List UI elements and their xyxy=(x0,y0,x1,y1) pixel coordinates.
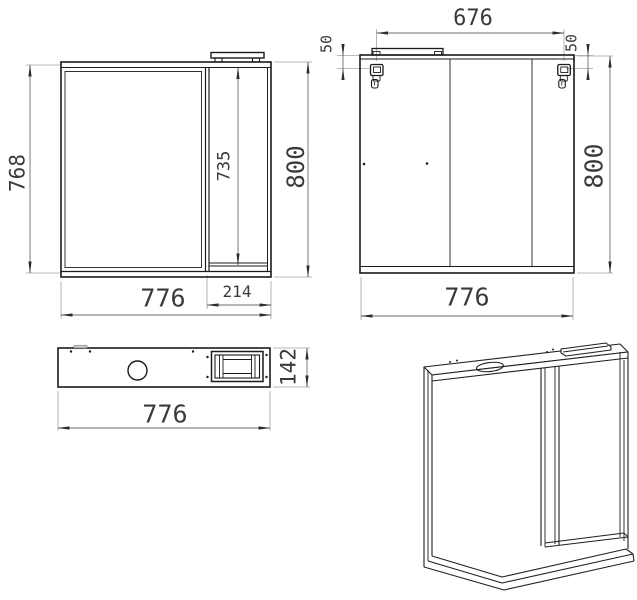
front-extension-lines xyxy=(26,62,312,319)
dim-front-width-overall: 776 xyxy=(140,286,185,311)
drawing-svg xyxy=(0,0,637,600)
screw-mark xyxy=(265,376,267,378)
screw-mark xyxy=(206,356,208,358)
screw-mark xyxy=(89,350,91,352)
dim-front-door-width: 214 xyxy=(223,284,252,300)
dim-front-height-left: 768 xyxy=(8,154,29,192)
screw-mark xyxy=(70,350,72,352)
screw-mark xyxy=(265,354,267,356)
light-fixture-rear xyxy=(372,49,443,56)
side-compartment-top xyxy=(212,352,264,382)
rear-view xyxy=(337,29,613,320)
dim-rear-width-overall: 776 xyxy=(444,285,489,310)
hanger-bracket-left xyxy=(371,65,384,89)
dim-front-height-overall: 800 xyxy=(284,145,308,188)
hanger-bracket-right xyxy=(558,65,571,89)
screw-hole xyxy=(363,163,366,166)
dim-front-door-height: 735 xyxy=(217,151,234,182)
dim-rear-offset-left: 50 xyxy=(320,35,335,53)
dim-top-depth: 142 xyxy=(279,348,300,386)
screw-mark xyxy=(206,376,208,378)
light-fixture-front xyxy=(211,53,264,63)
mirror-panel xyxy=(65,72,202,268)
screw-mark xyxy=(192,350,194,352)
dim-rear-hanger-span: 676 xyxy=(453,8,493,30)
hanger-tab xyxy=(74,345,87,348)
dim-rear-height-overall: 800 xyxy=(582,143,607,188)
top-cabinet-outline xyxy=(58,345,270,387)
iso-view xyxy=(424,343,634,590)
front-cabinet-outline xyxy=(61,53,271,278)
drawing-sheet: 768 735 800 776 214 676 50 50 800 776 77… xyxy=(0,0,637,600)
front-view xyxy=(26,53,312,320)
dim-top-width-overall: 776 xyxy=(142,402,187,427)
rear-cabinet-outline xyxy=(360,49,574,274)
screw-hole xyxy=(426,162,429,165)
wire-hole xyxy=(128,361,147,380)
dim-rear-offset-right: 50 xyxy=(565,34,580,52)
